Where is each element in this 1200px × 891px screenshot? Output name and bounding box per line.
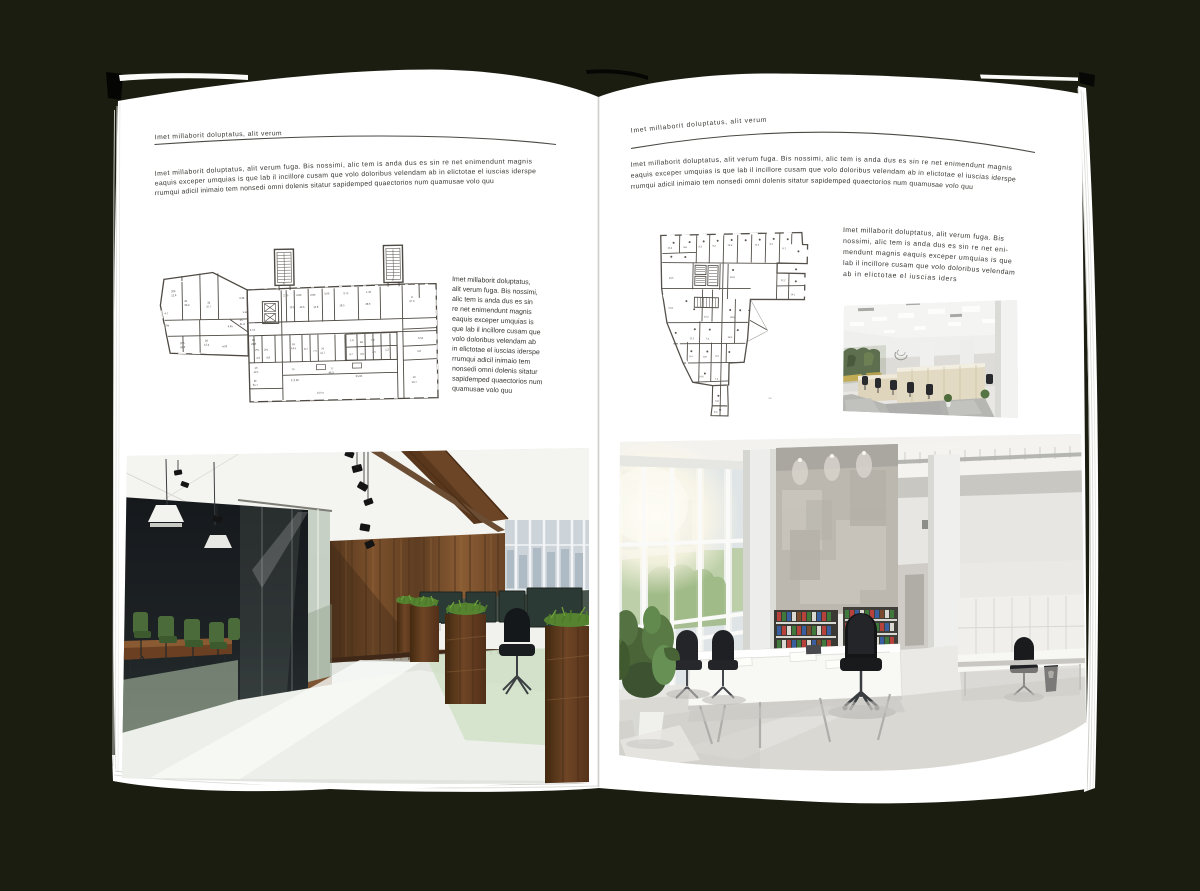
- svg-text:12.2: 12.2: [690, 337, 695, 340]
- svg-text:13.8: 13.8: [289, 305, 295, 309]
- svg-text:3.36: 3.36: [239, 296, 245, 300]
- svg-text:14.1: 14.1: [791, 293, 796, 296]
- svg-text:50.7: 50.7: [412, 380, 418, 384]
- svg-text:18.5: 18.5: [339, 303, 345, 307]
- svg-text:37.3: 37.3: [409, 299, 415, 303]
- svg-text:0.54: 0.54: [418, 336, 424, 340]
- svg-text:31.7: 31.7: [253, 383, 259, 387]
- svg-text:≈∞: ≈∞: [768, 397, 771, 400]
- svg-text:1.2: 1.2: [385, 347, 389, 351]
- svg-text:12.6: 12.6: [171, 293, 177, 297]
- svg-text:1.11: 1.11: [242, 310, 247, 314]
- svg-text:7.2: 7.2: [371, 338, 375, 342]
- svg-text:3.75: 3.75: [343, 291, 349, 295]
- svg-text:4.5: 4.5: [372, 350, 376, 354]
- svg-text:206: 206: [180, 341, 185, 345]
- svg-text:42.3: 42.3: [180, 345, 186, 349]
- svg-text:11.7: 11.7: [320, 351, 325, 355]
- svg-text:47.8: 47.8: [668, 307, 673, 310]
- svg-text:37.7: 37.7: [206, 305, 212, 309]
- svg-text:39.2: 39.2: [184, 303, 190, 307]
- svg-text:9.8: 9.8: [266, 356, 270, 360]
- svg-text:9.6: 9.6: [360, 352, 364, 356]
- svg-text:2.72: 2.72: [250, 328, 256, 332]
- svg-text:10.8: 10.8: [730, 276, 735, 279]
- svg-text:5.8: 5.8: [417, 349, 421, 353]
- svg-text:28.6: 28.6: [730, 316, 735, 319]
- svg-text:25.00: 25.00: [356, 374, 363, 378]
- svg-text:4.7: 4.7: [164, 311, 168, 315]
- svg-text:23.5: 23.5: [669, 277, 674, 280]
- svg-text:4.65: 4.65: [228, 324, 234, 328]
- svg-text:18.1: 18.1: [728, 336, 733, 339]
- svg-text:13.4: 13.4: [204, 343, 210, 347]
- svg-text:10.6: 10.6: [299, 305, 305, 309]
- svg-text:14.3: 14.3: [667, 247, 672, 250]
- svg-text:21.8: 21.8: [251, 342, 257, 346]
- svg-text:4.03: 4.03: [222, 344, 228, 348]
- svg-text:28.6: 28.6: [365, 302, 371, 306]
- svg-text:1.6: 1.6: [350, 338, 354, 342]
- svg-text:14.5: 14.5: [291, 346, 297, 350]
- svg-text:14.6: 14.6: [699, 375, 704, 378]
- svg-text:13.0: 13.0: [728, 244, 733, 247]
- svg-text:2.80: 2.80: [310, 293, 316, 297]
- svg-text:2.80: 2.80: [296, 293, 302, 297]
- svg-text:1=2.90: 1=2.90: [291, 378, 300, 382]
- svg-text:8.7: 8.7: [304, 347, 308, 351]
- svg-text:12.2: 12.2: [781, 279, 786, 282]
- svg-text:2.75: 2.75: [283, 293, 289, 297]
- svg-text:46.3: 46.3: [329, 370, 335, 374]
- svg-text:4.7: 4.7: [349, 352, 353, 356]
- svg-text:12.1: 12.1: [254, 370, 260, 374]
- svg-text:1.45: 1.45: [366, 290, 372, 294]
- svg-text:4.3: 4.3: [256, 356, 260, 360]
- svg-text:11.8: 11.8: [313, 305, 318, 309]
- svg-text:21.8: 21.8: [240, 322, 246, 326]
- svg-text:206: 206: [171, 289, 176, 293]
- svg-text:2-й эт: 2-й эт: [317, 391, 325, 395]
- svg-text:10a: 10a: [165, 323, 170, 327]
- svg-text:10.2: 10.2: [704, 315, 709, 318]
- svg-text:7.5: 7.5: [313, 349, 317, 353]
- svg-text:12.4: 12.4: [755, 243, 760, 246]
- svg-text:3.00: 3.00: [324, 291, 330, 295]
